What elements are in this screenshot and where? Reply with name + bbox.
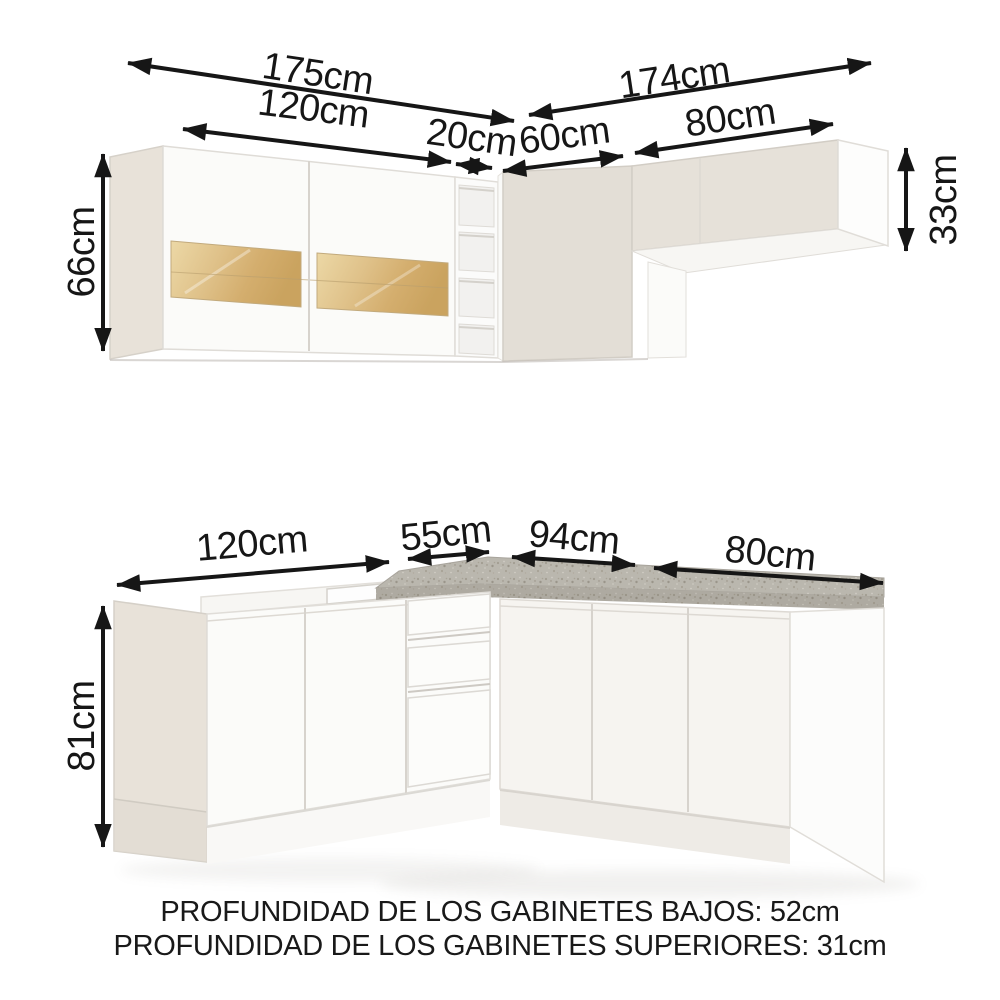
dim-label-lower-height: 81cm bbox=[61, 681, 103, 772]
floor-shadow bbox=[380, 870, 920, 898]
dim-label-corner-section: 94cm bbox=[527, 513, 621, 563]
dim-label-height-left: 66cm bbox=[61, 207, 103, 298]
glass-strip-left-door bbox=[171, 241, 301, 307]
corner-side-column bbox=[648, 262, 686, 358]
depth-note-base-cabinets: PROFUNDIDAD DE LOS GABINETES BAJOS: 52cm bbox=[0, 896, 1000, 929]
product-dimension-diagram: 175cm 120cm 20cm 60cm 174cm 80cm 66cm 33… bbox=[0, 0, 1000, 1000]
shelf-cubbies bbox=[459, 185, 494, 355]
upper-cabinet-assembly bbox=[110, 140, 888, 362]
lower-right-doors bbox=[500, 599, 790, 827]
dim-label-height-right: 33cm bbox=[923, 155, 965, 246]
depth-note-upper-cabinets: PROFUNDIDAD DE LOS GABINETES SUPERIORES:… bbox=[0, 930, 1000, 963]
dim-label-right-cabinet: 80cm bbox=[682, 91, 778, 146]
lower-right-side-panel bbox=[790, 608, 884, 882]
arrow-left-section bbox=[117, 562, 389, 585]
upper-right-side-panel bbox=[838, 140, 888, 246]
dim-label-left-section: 120cm bbox=[195, 518, 310, 570]
dim-label-corner: 60cm bbox=[517, 109, 613, 163]
upper-corner-cabinet-front bbox=[503, 166, 632, 361]
lower-cabinet-assembly bbox=[114, 557, 920, 898]
upper-left-side-panel bbox=[110, 146, 163, 359]
arrow-shelf bbox=[456, 164, 492, 168]
diagram-canvas: 175cm 120cm 20cm 60cm 174cm 80cm 66cm 33… bbox=[0, 0, 1000, 1000]
